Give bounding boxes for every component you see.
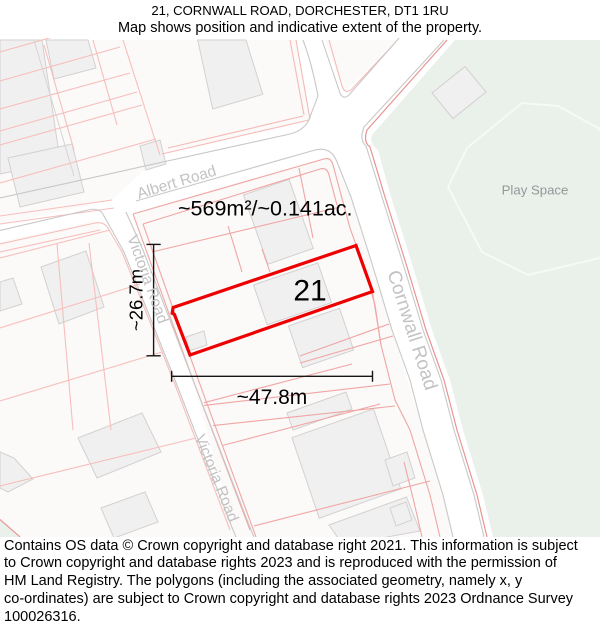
svg-text:21: 21 bbox=[293, 275, 326, 308]
svg-text:~569m²/~0.141ac.: ~569m²/~0.141ac. bbox=[178, 197, 353, 221]
svg-text:~47.8m: ~47.8m bbox=[237, 386, 308, 409]
svg-text:Play Space: Play Space bbox=[502, 183, 569, 198]
